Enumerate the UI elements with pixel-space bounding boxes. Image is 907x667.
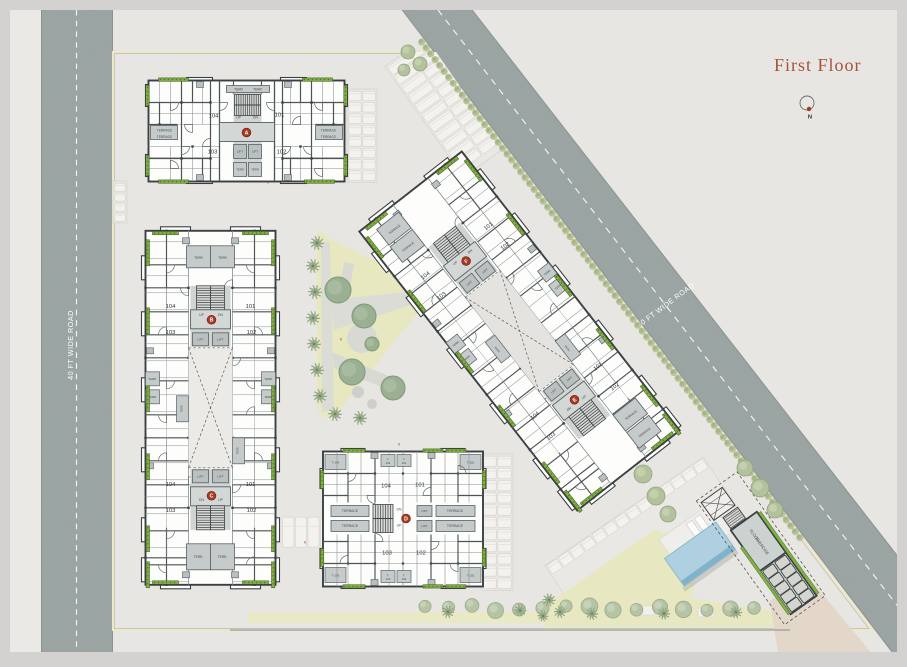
- svg-text:LIFT: LIFT: [421, 524, 427, 528]
- svg-text:T-101: T-101: [467, 461, 475, 465]
- svg-text:TERR: TERR: [234, 88, 243, 92]
- svg-text:T-103: T-103: [332, 574, 340, 578]
- svg-text:102: 102: [402, 577, 407, 581]
- svg-text:DN: DN: [199, 498, 204, 502]
- svg-text:TERR.: TERR.: [148, 377, 157, 381]
- svg-text:104: 104: [209, 114, 219, 120]
- svg-text:104: 104: [166, 482, 176, 488]
- svg-text:UP: UP: [199, 313, 204, 317]
- svg-text:103: 103: [208, 150, 218, 156]
- svg-text:First Floor: First Floor: [774, 55, 862, 75]
- svg-text:B: B: [210, 318, 214, 324]
- svg-text:104: 104: [386, 461, 391, 465]
- svg-text:TERR: TERR: [253, 88, 262, 92]
- svg-text:102: 102: [416, 551, 426, 557]
- svg-text:102: 102: [247, 508, 257, 514]
- svg-text:LIFT: LIFT: [237, 150, 243, 154]
- svg-text:DN: DN: [397, 508, 402, 512]
- svg-text:‹: ‹: [340, 337, 342, 343]
- svg-text:101: 101: [415, 483, 425, 489]
- svg-text:N: N: [808, 115, 812, 121]
- svg-text:‹: ‹: [304, 540, 306, 546]
- svg-text:LIFT: LIFT: [217, 337, 223, 341]
- svg-text:‹: ‹: [267, 180, 269, 186]
- svg-text:LIFT: LIFT: [252, 150, 258, 154]
- svg-text:104: 104: [166, 304, 176, 310]
- svg-text:TERRACE: TERRACE: [157, 135, 172, 139]
- svg-text:TERRACE: TERRACE: [342, 524, 359, 528]
- svg-text:103: 103: [386, 577, 391, 581]
- svg-text:TERRACE: TERRACE: [447, 509, 464, 513]
- svg-text:102: 102: [247, 330, 257, 336]
- svg-text:T-102: T-102: [467, 574, 475, 578]
- svg-text:104: 104: [381, 484, 391, 490]
- svg-text:LIFT: LIFT: [217, 474, 223, 478]
- svg-text:TERRACE: TERRACE: [447, 524, 464, 528]
- svg-text:TERR: TERR: [236, 447, 240, 454]
- svg-text:C: C: [210, 494, 214, 500]
- svg-text:UP: UP: [236, 116, 241, 120]
- svg-text:103: 103: [166, 330, 176, 336]
- svg-text:TERR: TERR: [236, 168, 244, 172]
- svg-text:DN: DN: [218, 313, 223, 317]
- svg-text:D: D: [404, 516, 408, 522]
- svg-text:‹: ‹: [398, 442, 400, 448]
- svg-text:TERR: TERR: [251, 168, 259, 172]
- svg-text:TERRACE: TERRACE: [321, 135, 336, 139]
- svg-text:102: 102: [277, 150, 287, 156]
- svg-text:LIFT: LIFT: [421, 509, 427, 513]
- svg-text:DN: DN: [253, 116, 258, 120]
- svg-text:‹: ‹: [411, 292, 413, 298]
- svg-text:T-104: T-104: [332, 461, 340, 465]
- svg-text:TERRACE: TERRACE: [321, 129, 336, 133]
- svg-text:LIFT: LIFT: [197, 337, 203, 341]
- svg-text:TERR.: TERR.: [194, 555, 204, 559]
- svg-text:101: 101: [246, 304, 256, 310]
- svg-text:101: 101: [246, 482, 256, 488]
- svg-text:TERR.: TERR.: [218, 555, 228, 559]
- svg-text:103: 103: [382, 551, 392, 557]
- svg-text:TERRACE: TERRACE: [157, 129, 172, 133]
- svg-text:UP: UP: [218, 498, 223, 502]
- svg-text:40 FT WIDE ROAD: 40 FT WIDE ROAD: [66, 310, 75, 380]
- svg-text:TERR: TERR: [180, 405, 184, 412]
- svg-text:101: 101: [402, 461, 407, 465]
- svg-text:101: 101: [275, 113, 285, 119]
- svg-text:UP: UP: [397, 524, 402, 528]
- svg-text:A: A: [245, 130, 249, 136]
- svg-text:TERR: TERR: [194, 256, 203, 260]
- svg-text:TERR.: TERR.: [264, 377, 273, 381]
- svg-text:TERRACE: TERRACE: [342, 509, 359, 513]
- svg-text:LIFT: LIFT: [197, 474, 203, 478]
- svg-text:103: 103: [166, 508, 176, 514]
- svg-text:TERR: TERR: [218, 256, 227, 260]
